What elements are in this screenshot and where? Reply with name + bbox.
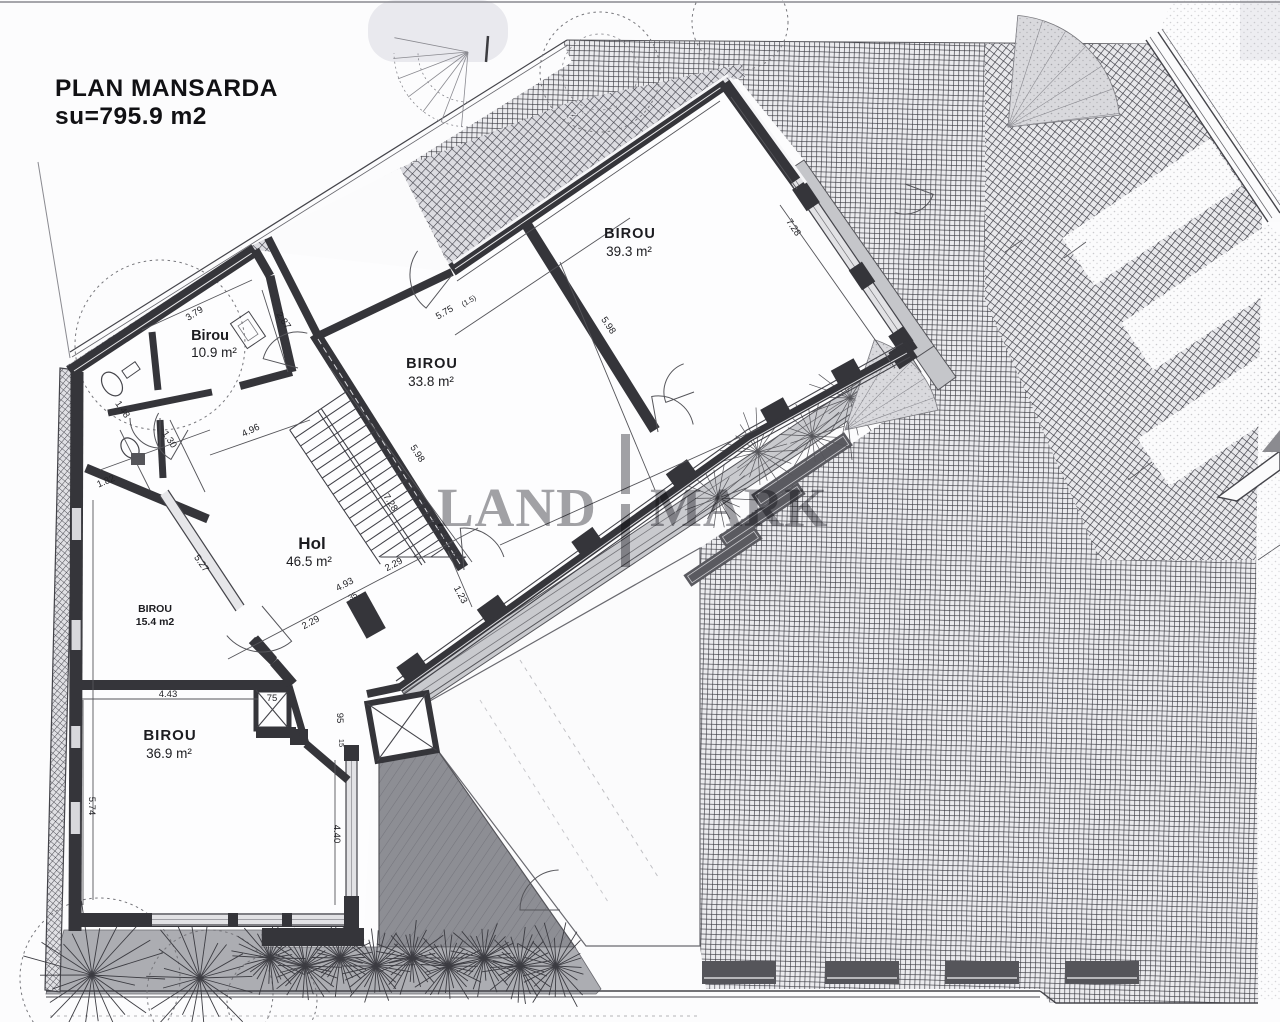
- svg-text:su=795.9 m2: su=795.9 m2: [55, 103, 207, 130]
- svg-text:4.40: 4.40: [331, 825, 342, 844]
- svg-text:BIROU: BIROU: [143, 727, 196, 744]
- svg-text:5.74: 5.74: [86, 797, 97, 816]
- svg-text:15.4 m2: 15.4 m2: [136, 616, 175, 628]
- svg-text:MARK: MARK: [650, 477, 828, 538]
- svg-text:46.5 m²: 46.5 m²: [286, 554, 332, 569]
- svg-text:75: 75: [267, 693, 278, 704]
- svg-text:36.9 m²: 36.9 m²: [146, 746, 192, 761]
- svg-text:15: 15: [337, 739, 346, 747]
- svg-text:Hol: Hol: [298, 534, 325, 553]
- svg-text:BIROU: BIROU: [406, 356, 458, 372]
- svg-text:4.43: 4.43: [159, 689, 178, 700]
- svg-text:95: 95: [334, 713, 345, 724]
- svg-text:BIROU: BIROU: [138, 603, 172, 615]
- svg-text:39.3 m²: 39.3 m²: [606, 244, 652, 259]
- svg-text:33.8 m²: 33.8 m²: [408, 374, 454, 389]
- svg-text:10.9 m²: 10.9 m²: [191, 345, 237, 360]
- svg-text:BIROU: BIROU: [604, 226, 656, 242]
- svg-text:Birou: Birou: [191, 328, 229, 344]
- svg-text:PLAN MANSARDA: PLAN MANSARDA: [55, 75, 278, 102]
- svg-text:LAND: LAND: [437, 477, 597, 538]
